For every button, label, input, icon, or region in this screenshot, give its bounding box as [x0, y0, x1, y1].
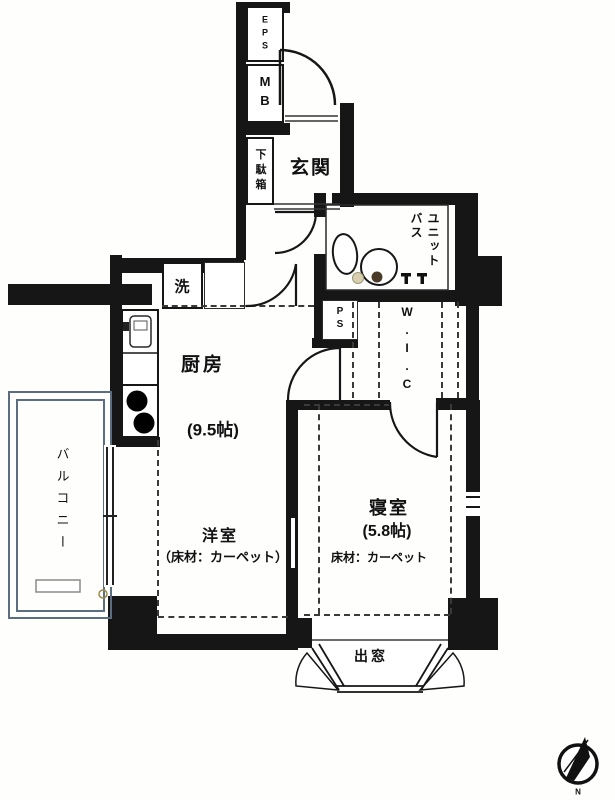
compass-north-label: N	[575, 788, 581, 797]
bath-sink-icon	[353, 249, 398, 285]
eps-label: EPS	[260, 15, 270, 54]
balcony-label: バルコニー	[53, 447, 72, 557]
bath-door-arc	[275, 212, 316, 253]
kitchen-size-label: (9.5帖)	[187, 416, 239, 441]
plan-linework	[0, 0, 615, 800]
bedroom-door-arc	[390, 402, 437, 457]
shoe-cabinet-label: 下駄箱	[252, 149, 268, 194]
bath-faucet-icons	[401, 273, 427, 284]
bedroom-window-lines	[466, 497, 480, 507]
living-room-label: 洋室	[202, 522, 238, 546]
unit-bath-label: ユニット バス	[407, 212, 441, 268]
toilet-icon	[331, 233, 360, 276]
washroom-door-arc	[246, 264, 296, 306]
washer-label: 洗	[174, 276, 189, 297]
bedroom-floor-note: 床材：カーペット	[331, 549, 427, 566]
genkan-label: 玄関	[290, 153, 332, 180]
floor-plan: EPS MB 玄関 下駄箱 ユニット バス 洗 PS W.I.C 厨房 (9.5…	[0, 0, 615, 800]
compass-icon	[559, 737, 597, 783]
balcony-step	[36, 580, 107, 598]
balcony-sliding-door	[103, 445, 117, 587]
living-floor-note: （床材：カーペット）	[158, 547, 288, 566]
bay-window-label: 出窓	[354, 646, 388, 666]
bedroom-size-label: (5.8帖)	[363, 517, 412, 541]
pipe-space-label: PS	[335, 306, 346, 332]
mb-label: MB	[258, 74, 273, 112]
entrance-door-arc	[280, 50, 335, 105]
wic-label: W.I.C	[400, 305, 414, 395]
kitchen-label: 厨房	[181, 350, 225, 377]
hall-door-arc	[288, 348, 340, 400]
